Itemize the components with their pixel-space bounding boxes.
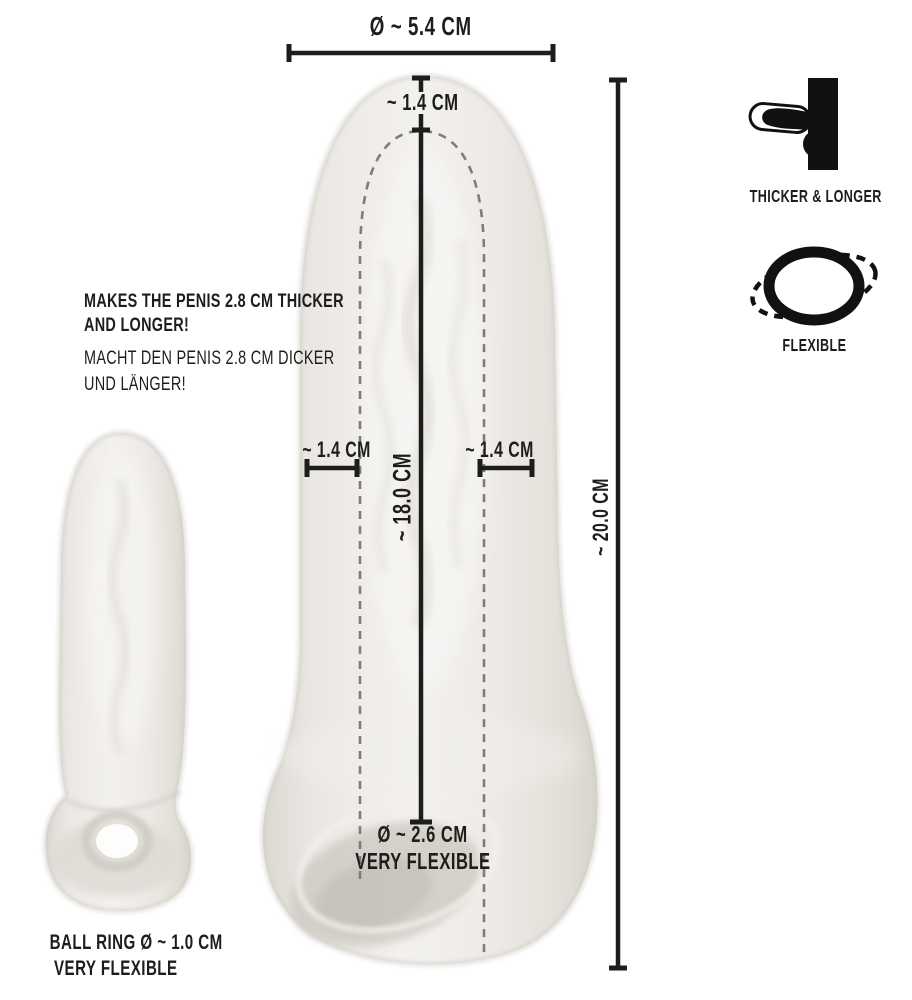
outer-diameter-bracket	[289, 44, 553, 62]
product-dimension-diagram: Ø ~ 5.4 CM ~ 1.4 CM ~ 1.4 CM ~ 1.4 CM ~ …	[0, 0, 912, 1000]
description-en-line2: AND LONGER!	[84, 315, 222, 337]
outer-diameter-label: Ø ~ 5.4 CM	[321, 12, 521, 41]
feature-label-thicker-longer: THICKER & LONGER	[724, 187, 904, 206]
ring-shape	[769, 252, 859, 320]
ball-ring-label: BALL RING Ø ~ 1.0 CM	[16, 931, 216, 954]
flexible-icon	[748, 238, 883, 333]
inner-length-label: ~ 18.0 CM	[389, 436, 418, 559]
description-de-line1: MACHT DEN PENIS 2.8 CM DICKER	[84, 348, 414, 370]
ball-shape	[803, 131, 827, 157]
ball-ring-note-label: VERY FLEXIBLE	[16, 957, 216, 980]
tip-wall-label: ~ 1.4 CM	[323, 90, 523, 115]
description-de-line2: UND LÄNGER!	[84, 374, 218, 396]
opening-diameter-label: Ø ~ 2.6 CM	[323, 822, 523, 847]
description-en-line1: MAKES THE PENIS 2.8 CM THICKER	[84, 291, 426, 313]
feature-label-flexible: FLEXIBLE	[724, 336, 904, 355]
thicker-longer-icon	[745, 70, 885, 180]
opening-note-label: VERY FLEXIBLE	[323, 849, 523, 874]
right-wall-label: ~ 1.4 CM	[400, 438, 600, 462]
total-length-label: ~ 20.0 CM	[588, 463, 614, 571]
